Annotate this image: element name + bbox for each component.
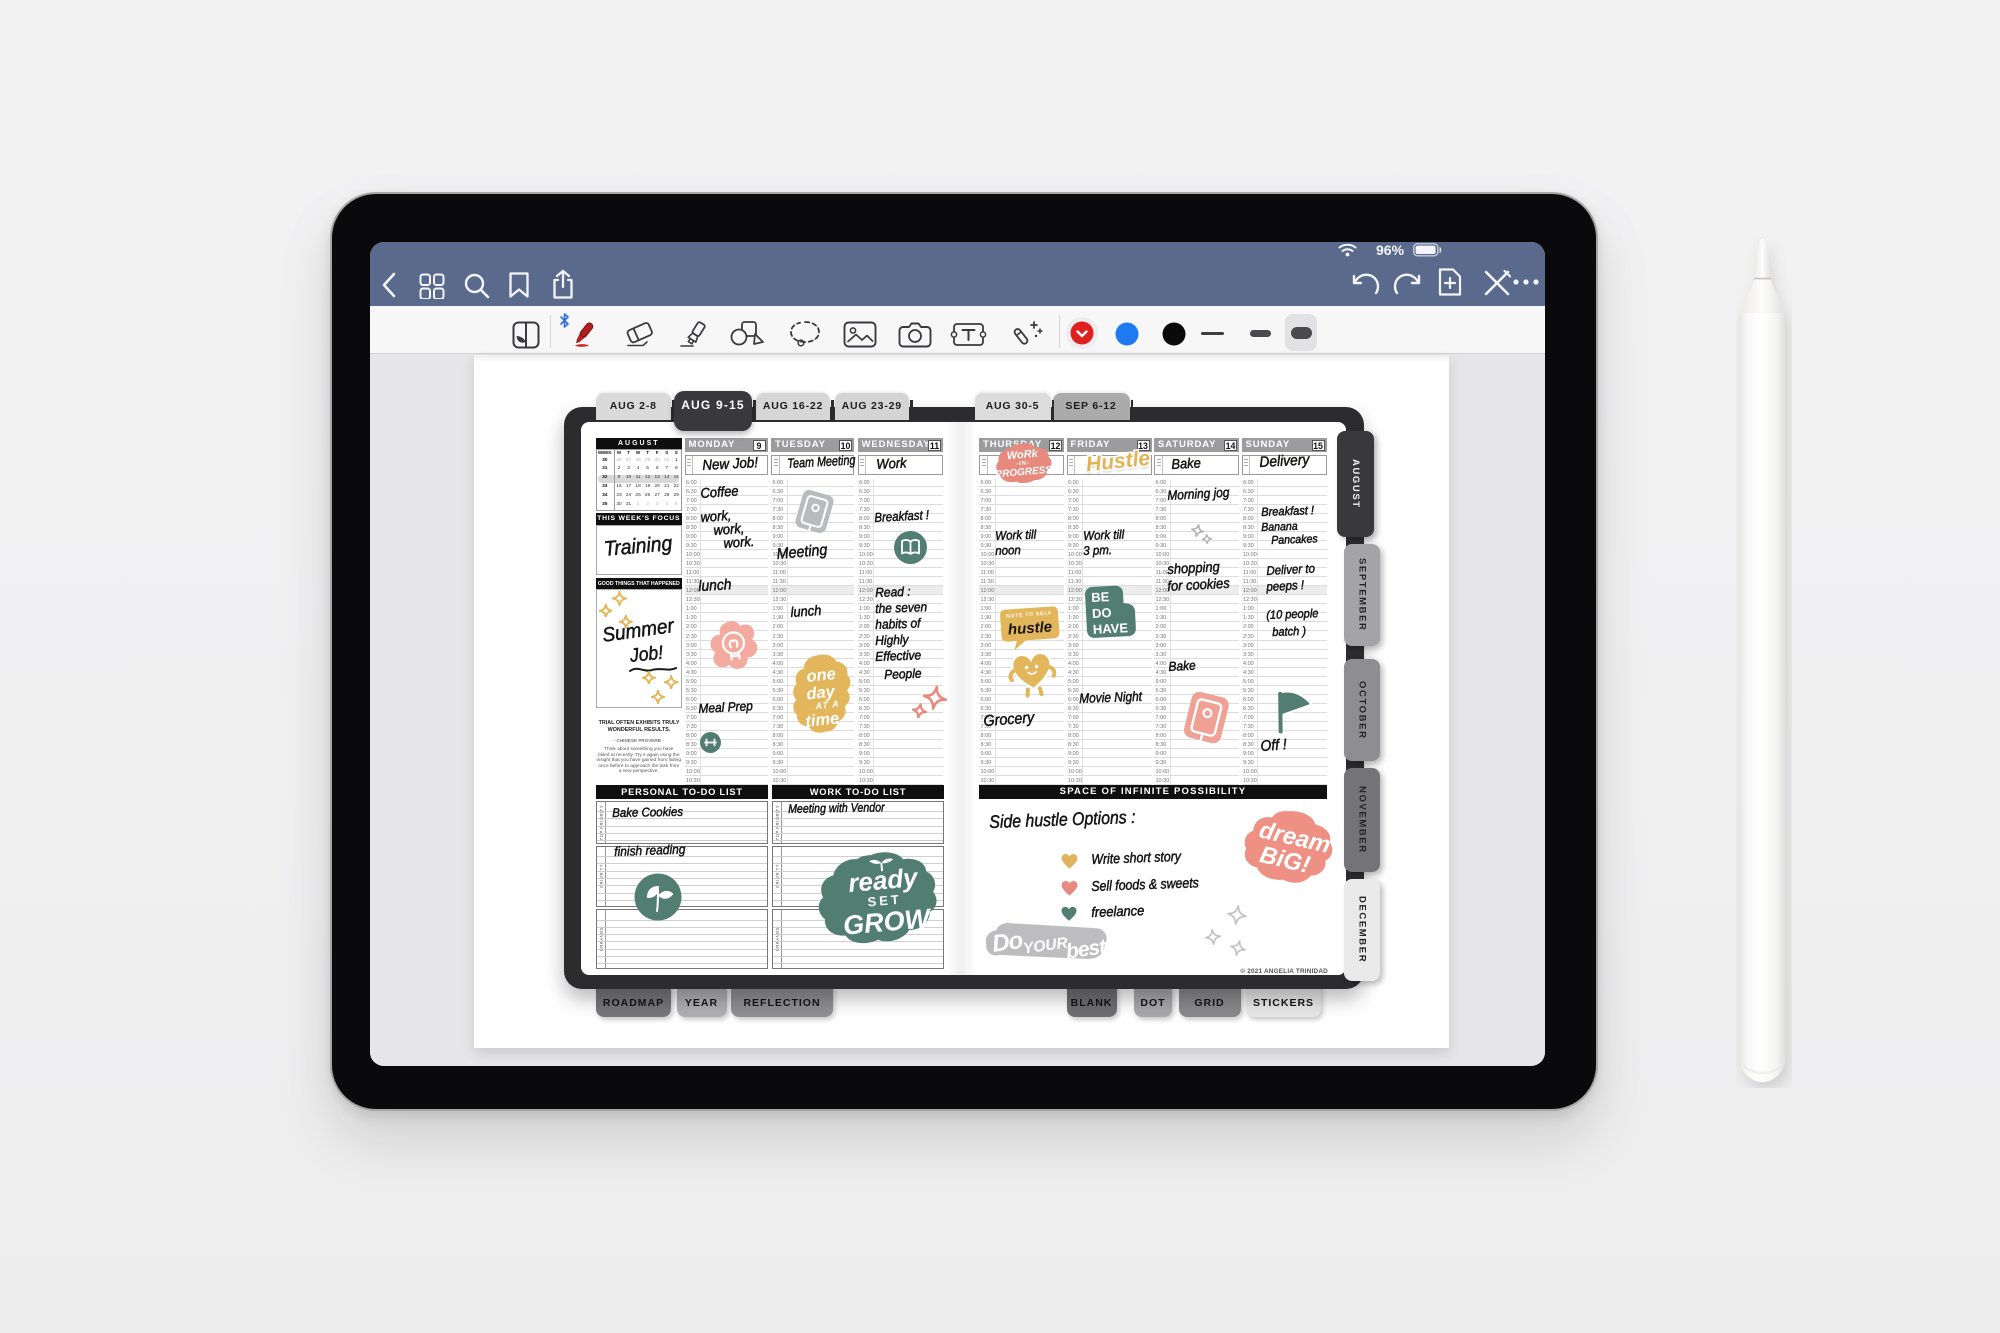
svg-text:HAVE: HAVE: [1092, 620, 1128, 637]
svg-text:DO: DO: [1092, 605, 1112, 621]
svg-text:time: time: [805, 709, 841, 730]
svg-text:GROW: GROW: [842, 903, 934, 941]
svg-text:BE: BE: [1091, 589, 1110, 605]
svg-text:Do: Do: [990, 927, 1024, 958]
svg-text:hustle: hustle: [1007, 618, 1052, 638]
svg-text:best: best: [1064, 935, 1108, 964]
